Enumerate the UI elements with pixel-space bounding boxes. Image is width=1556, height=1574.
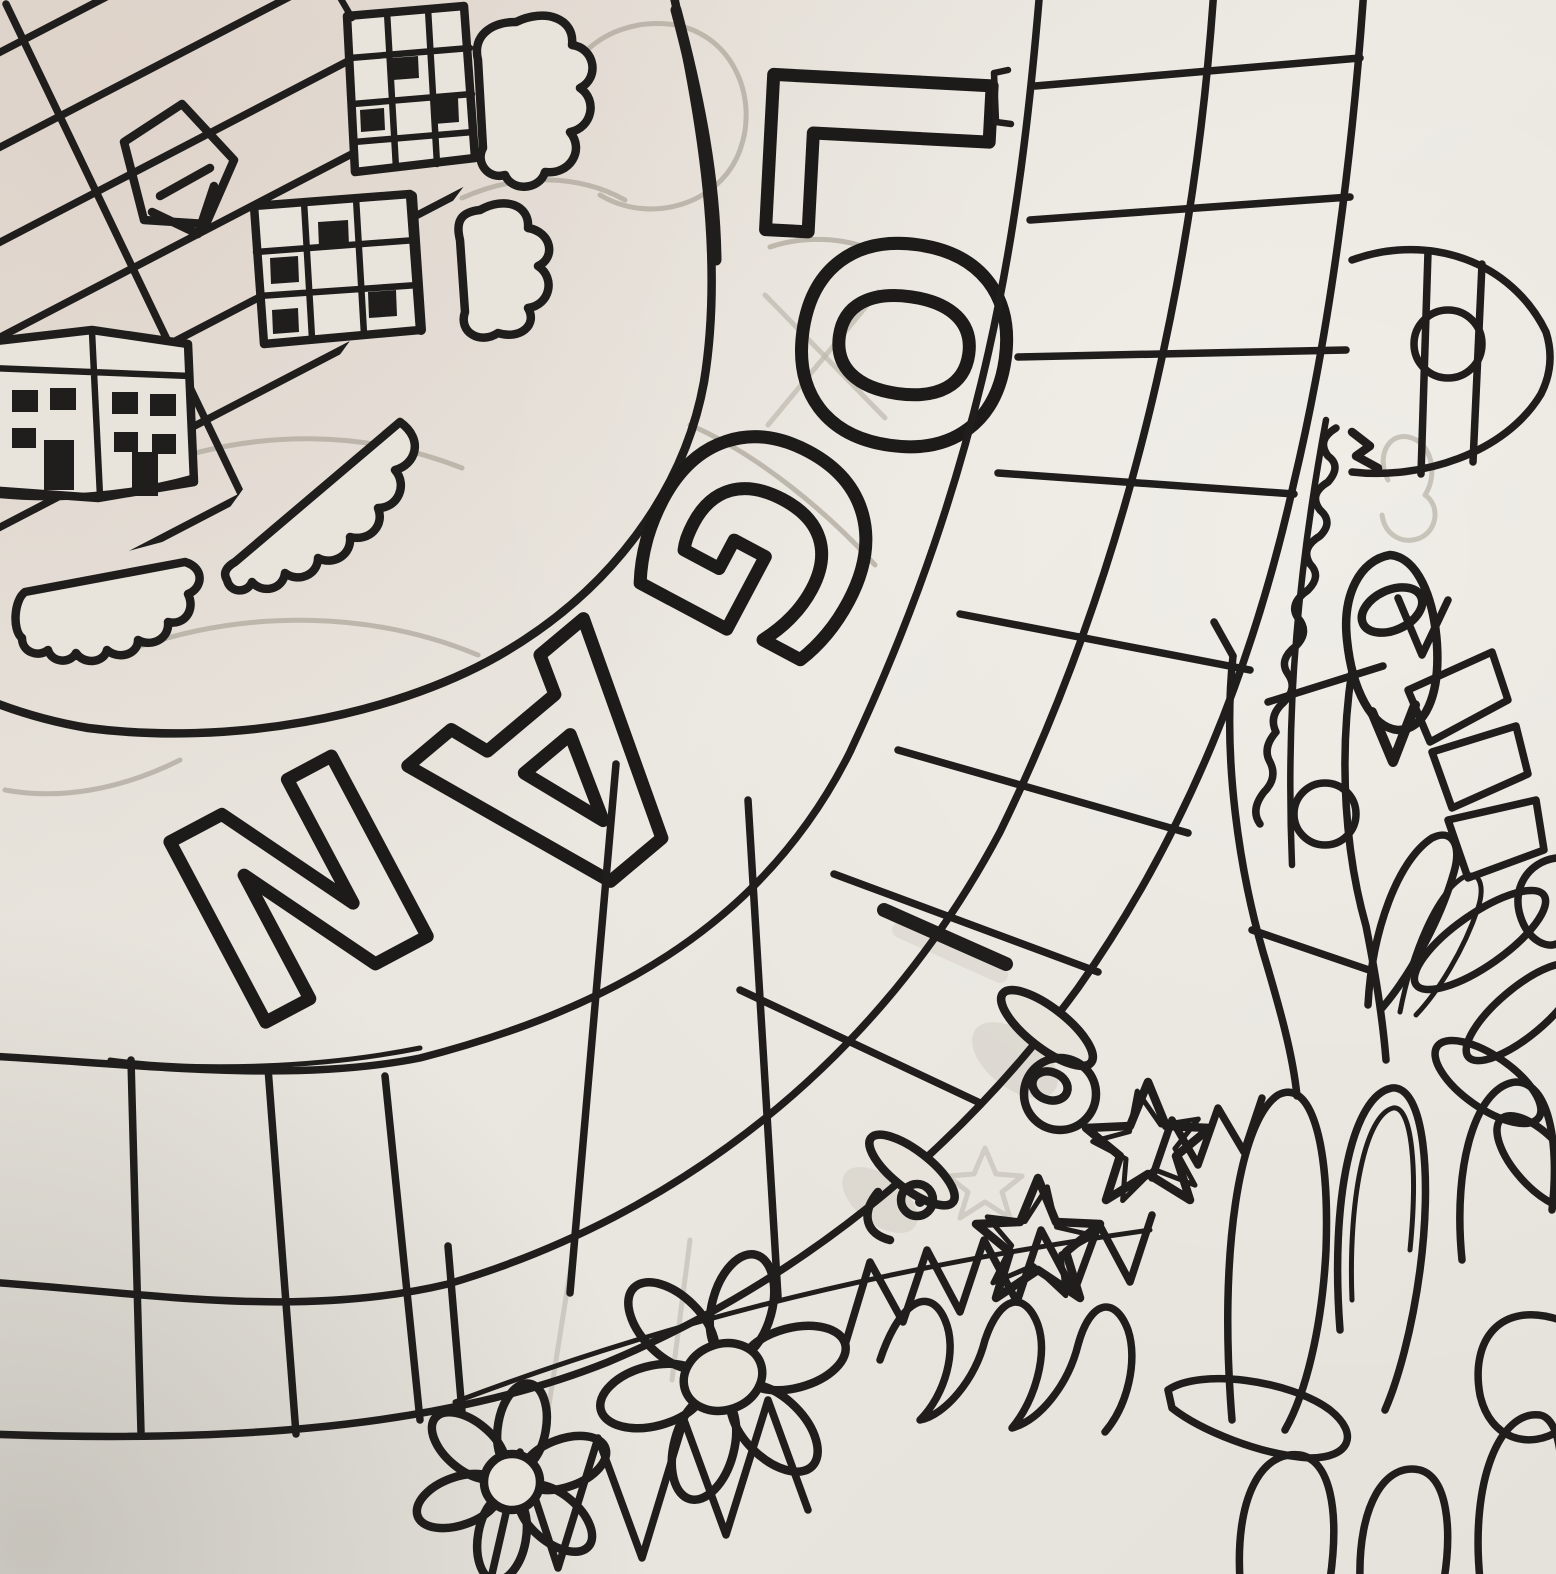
photo-of-drawing: LOGAN (0, 0, 1556, 1574)
house-row-left (0, 330, 194, 498)
drawing-canvas: LOGAN (0, 0, 1556, 1574)
cloud-tall-1 (477, 16, 593, 187)
house-tall-top (338, 0, 475, 172)
house-wide-middle (254, 194, 421, 344)
